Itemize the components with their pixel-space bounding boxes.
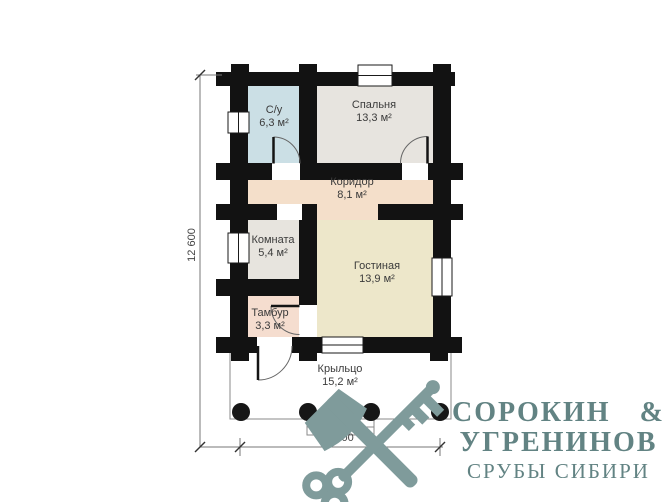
- logo-line-1: СОРОКИН &: [452, 397, 665, 428]
- logo-line-3: СРУБЫ СИБИРИ: [452, 458, 665, 484]
- floor-plan-page: С/у 6,3 м² Спальня 13,3 м² Коридор 8,1 м…: [0, 0, 669, 502]
- logo-line-2: УГРЕНИНОВ: [452, 428, 665, 458]
- logo-text: СОРОКИН & УГРЕНИНОВ СРУБЫ СИБИРИ: [452, 397, 665, 484]
